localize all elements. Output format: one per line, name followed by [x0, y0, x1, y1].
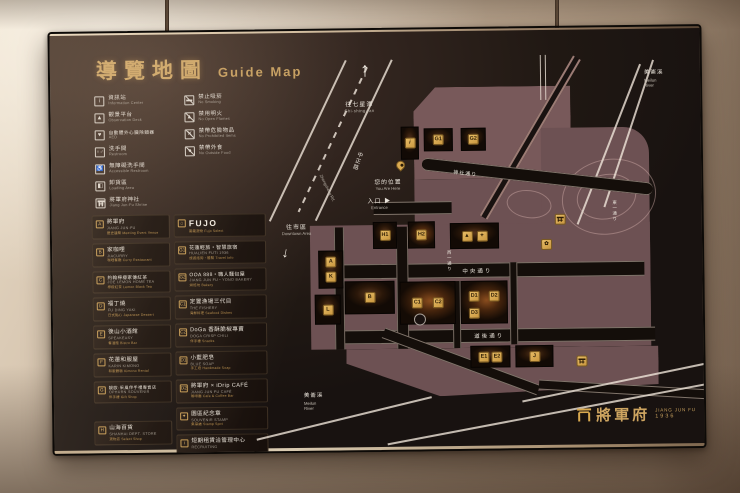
river-zh: 美崙溪 — [644, 67, 664, 75]
list-item: C2 DoGa 香酥脆椒專賣DOGA CRISP CHILI伴手禮 Snacks — [175, 322, 267, 347]
legend-facilities: i 資訊站Information Center ▲ 觀景平台Observatio… — [94, 94, 181, 214]
building-chip: C — [96, 276, 104, 284]
list-item: C 約翰檸檬家傳紅茶JOE LEMON HOME TEA檸檬紅茶 Lemon B… — [92, 270, 170, 294]
building-chip-h2: H2 — [416, 229, 427, 240]
list-item: D2 將軍府 × iDrip CAFÉJIANG JUN FU CAFÉ咖啡廳 … — [176, 378, 268, 403]
fujo-label: FUJO — [189, 218, 224, 229]
building-chip: i — [180, 440, 188, 448]
building-chip-c1: C1 — [412, 297, 423, 308]
no-outside-food-icon: ● — [185, 146, 195, 156]
site-map: i G1 G2 H1 H2 ▲ ✦ A K L — [260, 51, 707, 452]
shop-sub: 伴手禮 Gift Shop — [109, 394, 157, 399]
list-item: G1 花蓮輕旅・智慧旅宿HUALIEN FUTI 1936旅遊諮詢・體驗 Tra… — [174, 240, 266, 264]
building-b: B — [345, 281, 395, 315]
street-doko: 道後通り — [474, 331, 504, 339]
building-chip-d1: D1 — [469, 291, 480, 302]
building-c: C1 C2 — [400, 281, 457, 325]
legend-label-en: Observation Deck — [108, 118, 141, 123]
accessible-restroom-icon: ♿ — [95, 164, 105, 174]
wall-photo: 導覽地圖 Guide Map i 資訊站Information Center ▲… — [0, 0, 740, 493]
north-arrow-icon: ↑ — [360, 59, 370, 82]
road-edge-line — [540, 55, 542, 100]
title-zh: 導覽地圖 — [96, 54, 208, 85]
info-icon: i — [94, 96, 104, 106]
building-chip-e2: E2 — [491, 351, 502, 362]
building-ak: A K — [318, 250, 343, 288]
direction-en: Chi-shing-tan — [344, 108, 374, 113]
building-l: L — [315, 294, 341, 324]
list-item: E 後山小酒館SPEAKEASY餐酒館 Bistro Bar — [93, 325, 171, 350]
lane-vertical — [509, 262, 518, 344]
list-item: F 花蓮和服屋KARIN KIMONO和服體驗 Kimono Rental — [93, 353, 171, 378]
building-chip-c2: C2 — [433, 297, 444, 308]
no-prohibited-items-icon: ✕ — [185, 129, 195, 139]
building-chip-l: L — [322, 304, 333, 315]
legend-label-en: No Outside Food — [199, 151, 231, 156]
list-item: A 將軍府JIANG JUN-FU歷史建築 Meeting Event Venu… — [92, 215, 170, 240]
downtown-zh: 往市區 — [282, 222, 311, 231]
list-item: D 福丁燒FU DING YAKI日式點心 Japanese Dessert — [93, 297, 171, 322]
direction-chishingtan: 往七星潭 Chi-shing-tan — [344, 99, 374, 113]
directory-left: A 將軍府JIANG JUN-FU歷史建築 Meeting Event Venu… — [92, 215, 173, 450]
shop-sub: 咖哩餐廳 Curry Restaurant — [107, 258, 152, 263]
building-chip-b: B — [364, 292, 375, 303]
legend-label-en: No Prohibited Items — [199, 134, 236, 139]
legend-item: ▲ 觀景平台Observation Deck — [94, 111, 180, 123]
you-are-here-label: 您的位置 You Are Here — [374, 177, 401, 191]
shrine-torii-chip — [555, 214, 566, 225]
legend-item: ▲ 禁用明火No Open Flames — [184, 110, 270, 122]
building-chip: G — [98, 386, 106, 394]
building-chip: G1 — [178, 246, 186, 254]
logo-zh: 將軍府 — [596, 404, 650, 426]
garden-chip: ✿ — [541, 239, 552, 250]
building-scenic: ▲ ✦ — [450, 223, 499, 250]
building-info-center: i — [401, 126, 419, 159]
shop-sub: 烘焙坊 Bakery — [190, 282, 253, 287]
river-label-top: 美崙溪 Meilun River — [644, 67, 664, 87]
building-e: E1 E2 — [470, 345, 510, 367]
list-item: C1 定置漁場三代目THE FISHERY海鮮料理 Seafood Dishes — [175, 294, 267, 319]
legend-label-en: AED — [109, 135, 155, 140]
legend-label-en: No Open Flames — [198, 117, 230, 122]
logo-year: 1936 — [655, 413, 696, 421]
aed-icon: ♥ — [95, 130, 105, 140]
shop-sub: 選物店 Select Shop — [109, 436, 156, 441]
you-are-here-pin — [394, 159, 407, 172]
loading-area-icon: ◧ — [95, 181, 105, 191]
river-edge-line — [257, 396, 432, 440]
list-item: G 靚歐·采風伴手禮專賣店OPHURN SOUVENIR伴手禮 Gift Sho… — [94, 380, 172, 403]
building-chip-a: A — [325, 256, 336, 267]
direction-zh: 往七星潭 — [344, 99, 374, 108]
legend-label-en: Jiang Jun-Fu Shrine — [110, 203, 148, 208]
entrance-zh: 入口 ▶ — [367, 196, 391, 205]
street-central: 中央通り — [462, 267, 492, 275]
building-h1: H1 — [373, 222, 397, 249]
legend-label-en: Information Center — [108, 101, 143, 106]
building-chip: D — [97, 303, 105, 311]
restroom-icon: ♀♂ — [95, 147, 105, 157]
guide-map-signboard: 導覽地圖 Guide Map i 資訊站Information Center ▲… — [47, 24, 706, 456]
fujo-header: ⌂ FUJO富藏選物 Fujo Select — [174, 213, 266, 237]
info-chip: i — [404, 138, 415, 149]
building-chip: D1 — [179, 356, 187, 364]
legend-label-en: Loading Area — [109, 186, 134, 191]
legend-item: ● 禁帶外食No Outside Food — [185, 144, 271, 156]
building-chip-e1: E1 — [478, 351, 489, 362]
legend-label-en: Accessible Restroom — [109, 169, 149, 174]
building-chip-d3: D3 — [469, 308, 480, 319]
street-zhongzheng-zh: 中正路 — [350, 150, 364, 171]
road-edge-line — [545, 55, 547, 100]
building-chip: C1 — [179, 300, 187, 308]
shop-sub: 和服體驗 Kimono Rental — [109, 368, 149, 373]
torii-gate-chip — [576, 355, 587, 366]
entrance-label: 入口 ▶ Entrance — [367, 196, 391, 210]
list-item: H 山海百貨SHANHAI DEPT. STORE選物店 Select Shop — [94, 421, 172, 446]
downtown-en: Downtown Area — [282, 231, 311, 236]
building-chip: D2 — [180, 384, 188, 392]
fountain — [414, 313, 426, 325]
building-d: D1 D2 D3 — [461, 280, 509, 324]
list-item: ✦ 園區紀念章SOUVENIR STAMP集章處 Stamp Spot — [176, 406, 268, 431]
shop-sub: 檸檬紅茶 Lemon Black Tea — [108, 285, 155, 290]
shop-name-en: RECRUITING — [191, 445, 245, 450]
scenic-spot-icon: ▲ — [461, 230, 472, 241]
shop-sub: 旅遊諮詢・體驗 Travel Info — [189, 255, 238, 260]
stamp-icon: ✦ — [180, 412, 188, 420]
photo-spot-icon: ✦ — [476, 230, 487, 241]
entrance-en: Entrance — [368, 205, 392, 210]
no-open-flames-icon: ▲ — [184, 112, 194, 122]
legend-item: 將軍府神社Jiang Jun-Fu Shrine — [95, 196, 181, 208]
legend-label-en: Restroom — [109, 153, 127, 158]
legend-label-en: No Smoking — [198, 100, 222, 105]
shop-sub: 咖啡廳 Cafe & Coffee Bar — [191, 394, 249, 399]
legend-item: ♥ 自動體外心臟除顫器AED — [95, 128, 181, 140]
legend-item: ♀♂ 洗手間Restroom — [95, 145, 181, 157]
building-chip-j: J — [529, 351, 540, 362]
building-chip-d2: D2 — [489, 291, 500, 302]
shrine-torii-icon — [95, 198, 105, 208]
legend-item: ▬ 禁止吸菸No Smoking — [184, 93, 270, 105]
list-item: G2 OOA 888・職人麵包屋JIANG JUN FU・YONO BAKERY… — [174, 267, 266, 291]
building-chip-h1: H1 — [379, 230, 390, 241]
street-west1: 西一通り — [446, 250, 452, 272]
fujo-sub: 富藏選物 Fujo Select — [189, 228, 224, 233]
observation-deck-icon: ▲ — [94, 113, 104, 123]
building-chip-k: K — [325, 271, 336, 282]
shop-sub: 海鮮料理 Seafood Dishes — [190, 311, 232, 316]
list-item: i 短期租賃洽管理中心RECRUITING — [176, 434, 268, 455]
building-chip-g2: G2 — [468, 134, 479, 145]
here-zh: 您的位置 — [374, 177, 401, 186]
hanging-rod-left — [165, 0, 169, 34]
downtown-label: 往市區 Downtown Area — [282, 222, 312, 236]
no-smoking-icon: ▬ — [184, 95, 194, 105]
building-chip: A — [96, 220, 104, 228]
building-chip: B — [96, 248, 104, 256]
shop-sub: 伴手禮 Snacks — [190, 338, 244, 343]
building-h2: H2 — [408, 221, 435, 248]
legend-item: i 資訊站Information Center — [94, 94, 180, 106]
street-east1: 東一通り — [612, 200, 618, 222]
river-zh: 美崙溪 — [304, 391, 324, 399]
river-en: River — [304, 406, 324, 411]
building-chip: E — [97, 331, 105, 339]
building-chip: H — [98, 426, 106, 434]
brand-logo: 將軍府 JIANG JUN FU 1936 — [577, 403, 696, 425]
river-label-bottom: 美崙溪 Meilun River — [304, 391, 324, 411]
list-item: D1 小藍肥皂BLUE SOAP手工皂 Handmade Soap — [175, 350, 267, 375]
logo-torii-icon — [577, 408, 591, 421]
shop-sub: 歷史建築 Meeting Event Venue — [107, 230, 159, 235]
fujo-icon: ⌂ — [178, 219, 186, 227]
river-en: River — [644, 82, 664, 87]
shop-sub: 餐酒館 Bistro Bar — [108, 341, 138, 346]
legend-item: ♿ 無障礙洗手間Accessible Restroom — [95, 162, 181, 174]
building-chip: F — [97, 358, 105, 366]
building-chip: G2 — [178, 273, 186, 281]
legend-item: ◧ 卸貨區Loading Area — [95, 179, 181, 191]
downtown-arrow-icon: ↓ — [281, 244, 291, 261]
building-g2: G2 — [461, 128, 486, 151]
shop-sub: 日式點心 Japanese Dessert — [108, 313, 154, 318]
directory-middle: ⌂ FUJO富藏選物 Fujo Select G1 花蓮輕旅・智慧旅宿HUALI… — [174, 213, 269, 456]
here-en: You Are Here — [374, 186, 401, 191]
shop-sub: 集章處 Stamp Spot — [191, 422, 228, 427]
legend-item: ✕ 禁帶危險物品No Prohibited Items — [185, 127, 271, 139]
building-chip-g1: G1 — [433, 134, 444, 145]
shop-sub: 手工皂 Handmade Soap — [191, 366, 231, 371]
building-j: J — [515, 345, 553, 367]
building-chip: C2 — [179, 328, 187, 336]
list-item: B 家咖哩JIACURRY咖哩餐廳 Curry Restaurant — [92, 242, 170, 267]
building-g1: G1 — [424, 128, 453, 151]
legend-rules: ▬ 禁止吸菸No Smoking ▲ 禁用明火No Open Flames ✕ … — [184, 93, 271, 162]
sign-frame-top — [49, 26, 699, 36]
